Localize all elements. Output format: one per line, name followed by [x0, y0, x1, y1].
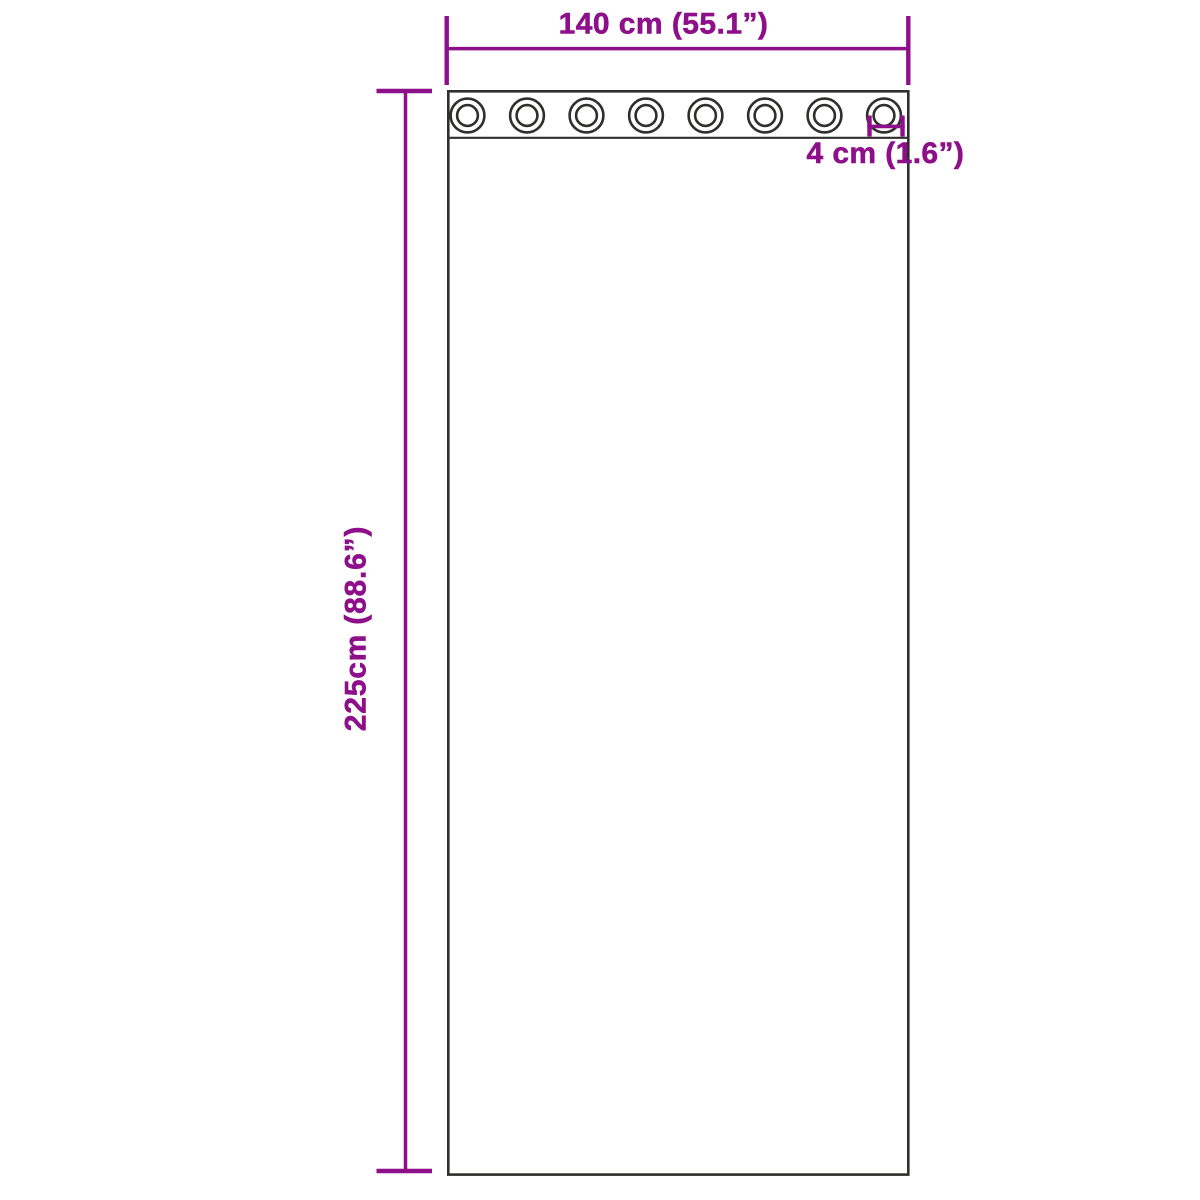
- svg-text:140 cm (55.1”): 140 cm (55.1”): [559, 8, 769, 41]
- svg-text:225cm (88.6”): 225cm (88.6”): [340, 526, 373, 732]
- svg-text:4 cm (1.6”): 4 cm (1.6”): [807, 137, 965, 170]
